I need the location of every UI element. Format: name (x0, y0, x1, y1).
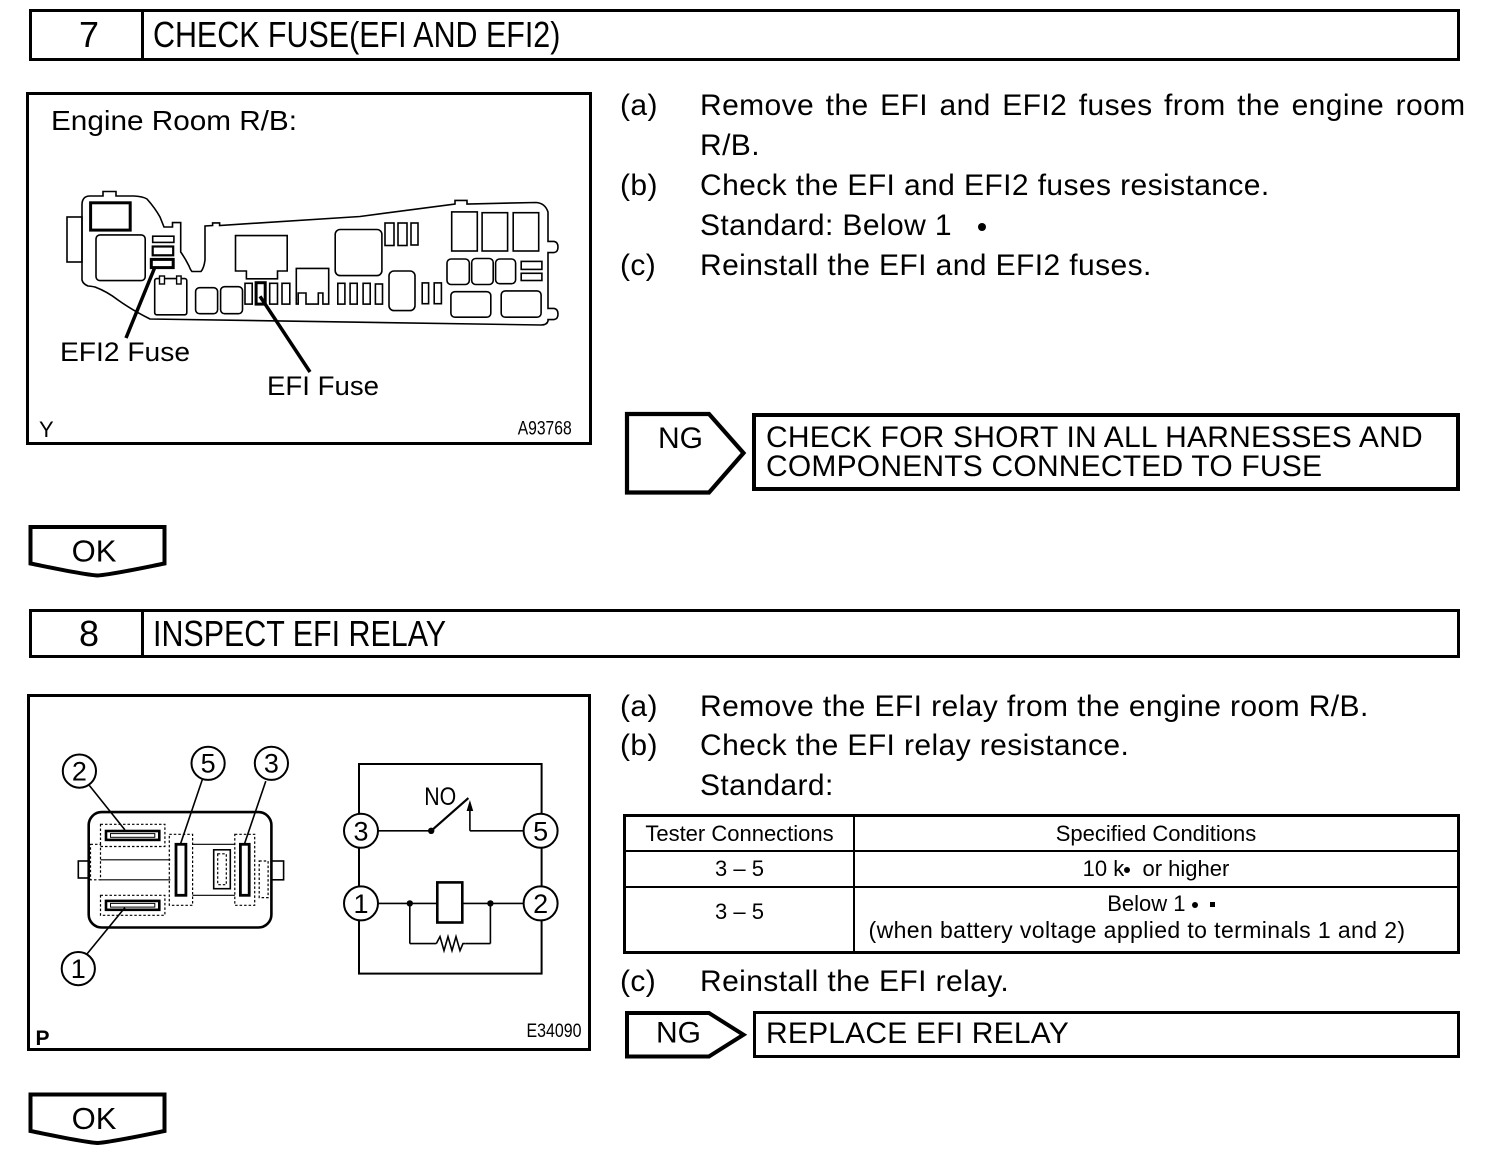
svg-text:EFI2 Fuse: EFI2 Fuse (60, 337, 190, 367)
svg-text:3: 3 (264, 749, 279, 779)
svg-text:NG: NG (656, 1017, 701, 1050)
svg-text:2: 2 (72, 757, 87, 787)
svg-text:NO: NO (424, 783, 456, 811)
svg-text:NG: NG (658, 422, 703, 455)
svg-text:5: 5 (201, 749, 216, 779)
svg-text:OK: OK (72, 1101, 117, 1136)
svg-text:5: 5 (533, 817, 548, 847)
svg-text:P: P (36, 1027, 50, 1050)
svg-text:Engine Room R/B:: Engine Room R/B: (51, 105, 297, 136)
svg-text:A93768: A93768 (518, 417, 572, 439)
svg-text:E34090: E34090 (527, 1020, 582, 1042)
svg-text:2: 2 (533, 889, 548, 919)
svg-text:3: 3 (353, 817, 368, 847)
svg-text:OK: OK (72, 534, 117, 569)
svg-text:EFI Fuse: EFI Fuse (267, 371, 379, 401)
svg-text:1: 1 (353, 889, 368, 919)
svg-text:Y: Y (39, 417, 54, 442)
svg-text:1: 1 (71, 954, 86, 984)
